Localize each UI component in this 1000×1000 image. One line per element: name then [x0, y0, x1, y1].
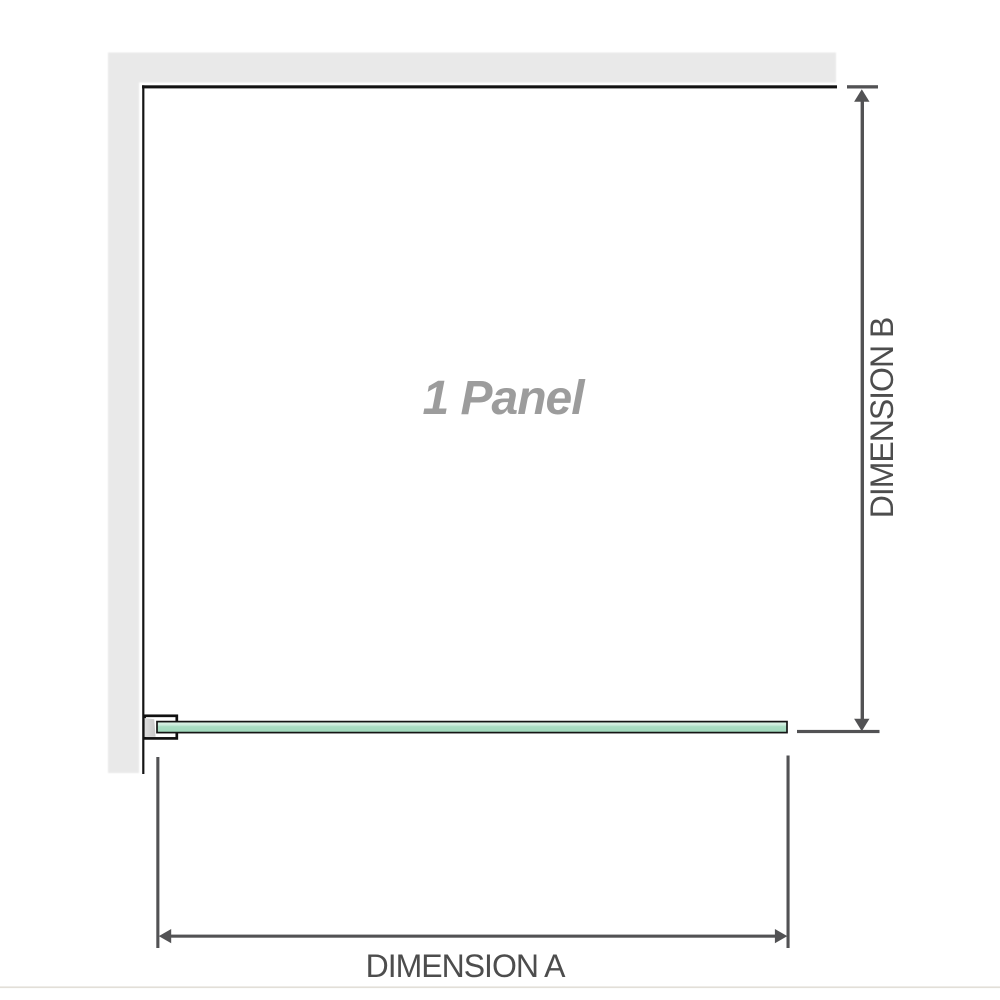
svg-text:DIMENSION A: DIMENSION A	[366, 948, 566, 984]
svg-text:1 Panel: 1 Panel	[422, 372, 586, 425]
svg-text:DIMENSION B: DIMENSION B	[864, 318, 900, 519]
